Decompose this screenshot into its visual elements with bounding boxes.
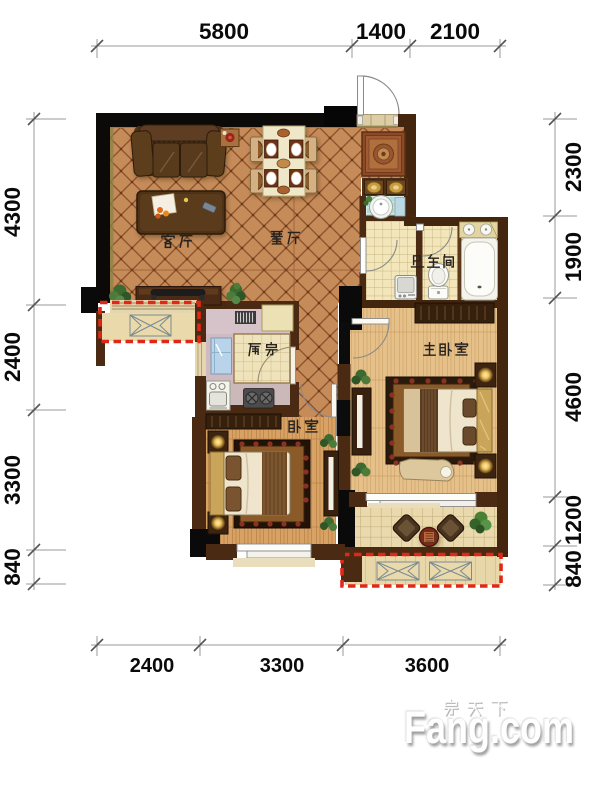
svg-text:840: 840 [561,550,586,588]
svg-text:1900: 1900 [561,232,586,282]
svg-text:2100: 2100 [430,19,480,44]
svg-text:4600: 4600 [561,372,586,422]
svg-text:2400: 2400 [130,655,175,677]
svg-text:1200: 1200 [561,495,586,545]
svg-text:2400: 2400 [0,332,25,382]
svg-text:2300: 2300 [561,142,586,192]
svg-text:5800: 5800 [199,19,249,44]
svg-text:3300: 3300 [0,455,25,505]
svg-text:1400: 1400 [356,19,406,44]
svg-text:3300: 3300 [260,655,305,677]
svg-text:4300: 4300 [0,187,25,237]
svg-text:3600: 3600 [405,655,450,677]
svg-text:840: 840 [0,548,25,586]
svg-text:Fang.com: Fang.com [404,702,574,753]
